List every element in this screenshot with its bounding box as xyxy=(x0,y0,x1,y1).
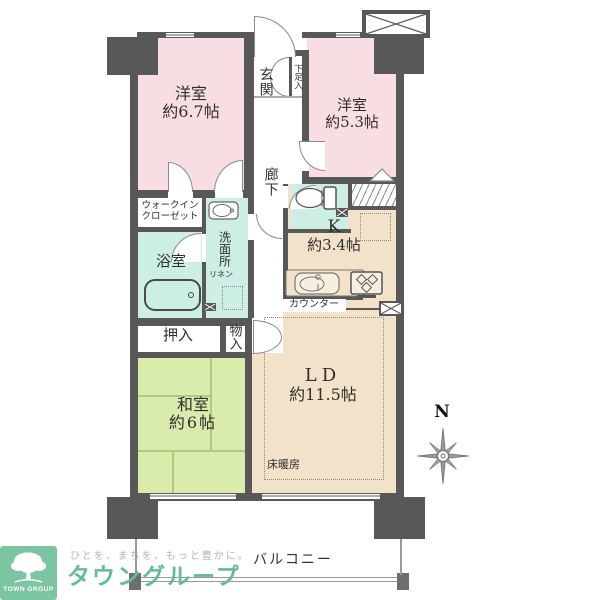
compass-icon xyxy=(415,426,471,486)
elevator-shaft-icon xyxy=(362,10,430,38)
counter-label: カウンター xyxy=(282,299,346,312)
room1-size: 約6.7帖 xyxy=(153,103,229,121)
wall-entrance-left xyxy=(244,32,254,197)
room2-name: 洋室 xyxy=(313,97,391,114)
balcony-pillar-right xyxy=(374,497,425,539)
room1-door-leaf xyxy=(242,160,243,192)
wall-top-right-block xyxy=(374,38,424,74)
tree-icon xyxy=(10,550,47,584)
floor-plan: 洋室 約6.7帖 洋室 約5.3帖 玄関 下足入 廊下 ウォークイン クローゼッ… xyxy=(0,0,600,600)
washing-machine-space xyxy=(222,286,243,310)
door-gap xyxy=(283,186,288,208)
railing-line-right xyxy=(400,539,402,575)
wall-wic-bath-divider xyxy=(138,227,202,232)
ld-name: LD xyxy=(284,366,362,386)
entrance-door-arc xyxy=(254,16,296,57)
door-gap xyxy=(168,191,193,198)
stove-icon xyxy=(350,271,383,298)
tatami-line xyxy=(138,450,245,452)
railing-post-right xyxy=(397,573,409,590)
oshiire-label: 押入 xyxy=(156,327,200,344)
window xyxy=(150,494,236,499)
logo-badge: TOWN GROUP xyxy=(0,546,57,600)
wic-door-leaf xyxy=(168,162,169,192)
bathtub-icon xyxy=(143,278,202,312)
wall-left-upper xyxy=(130,70,138,192)
door-gap xyxy=(215,191,243,198)
entrance-label: 玄関 xyxy=(257,60,273,104)
washroom-door-arc xyxy=(256,214,282,239)
ld-label: LD 約11.5帖 xyxy=(284,366,362,404)
floor-heating-label: 床暖房 xyxy=(267,459,313,471)
room1-label: 洋室 約6.7帖 xyxy=(153,85,229,121)
window xyxy=(166,33,194,37)
pipe-space-icon xyxy=(379,301,403,316)
washitsu-name: 和室 xyxy=(157,396,229,414)
wall-monoire-right xyxy=(245,318,252,354)
brand-tagline: ひとを、まちを、もっと豊かに。 xyxy=(70,551,330,562)
compass-north-label: N xyxy=(428,403,456,422)
bathroom-label: 浴室 xyxy=(150,253,192,270)
wall-right xyxy=(396,72,404,498)
room2-door-leaf xyxy=(299,141,325,142)
kitchen-label: K 約3.4帖 xyxy=(300,218,368,254)
wall-left-lower xyxy=(130,190,138,497)
wall-closet-bottom xyxy=(348,206,396,210)
room1-name: 洋室 xyxy=(153,85,229,103)
washroom-label: 洗面所 xyxy=(217,226,230,272)
duct-icon xyxy=(204,303,216,311)
ld-size: 約11.5帖 xyxy=(284,386,362,404)
window xyxy=(336,33,360,37)
entrance-door-leaf xyxy=(254,16,255,57)
monoire-label: 物入 xyxy=(226,320,241,354)
folding-door-icon xyxy=(368,168,396,182)
corridor-label: 廊下 xyxy=(262,162,278,202)
ld-door-leaf xyxy=(253,320,254,354)
room2-label: 洋室 約5.3帖 xyxy=(313,97,391,131)
door-gap xyxy=(248,214,254,240)
washitsu-label: 和室 約6帖 xyxy=(157,396,229,432)
washitsu-size: 約6帖 xyxy=(157,414,229,432)
kitchen-name: K xyxy=(300,218,368,237)
linen-label: リネン xyxy=(208,271,234,280)
duct-icon xyxy=(336,208,348,217)
window xyxy=(262,494,380,499)
shoebox-label: 下足入 xyxy=(292,58,302,96)
logo-badge-text: TOWN GROUP xyxy=(0,586,57,593)
washbasin-icon xyxy=(208,201,239,220)
kitchen-size: 約3.4帖 xyxy=(300,237,368,254)
balcony-pillar-left xyxy=(107,497,158,539)
room2-size: 約5.3帖 xyxy=(313,114,391,131)
room2-closet-floor xyxy=(350,184,396,206)
wall-washitsu-right xyxy=(245,352,252,498)
tatami-line xyxy=(172,450,174,493)
door-gap xyxy=(202,234,206,262)
toilet-icon xyxy=(294,186,337,210)
wic-line2: クローゼット xyxy=(139,212,201,223)
brand-name: タウングループ xyxy=(67,564,327,590)
wic-label: ウォークイン クローゼット xyxy=(139,201,201,222)
